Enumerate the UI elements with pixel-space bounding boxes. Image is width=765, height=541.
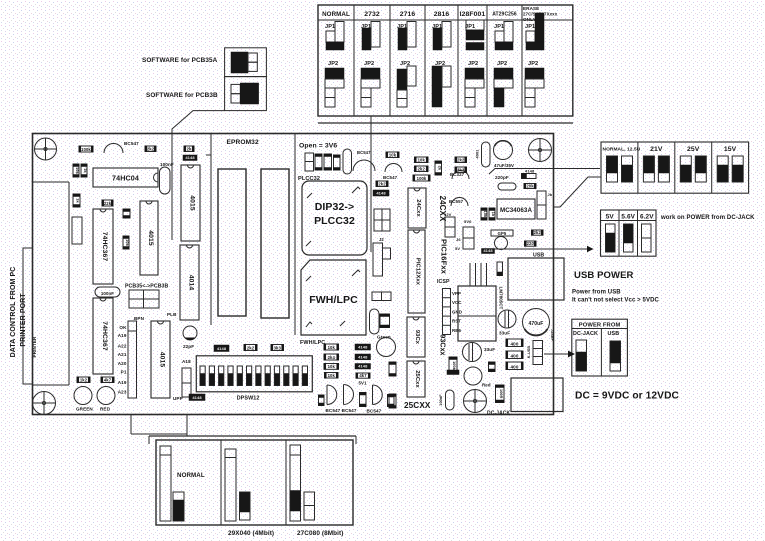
svg-text:NORMAL: NORMAL [322,11,350,18]
svg-text:93Cx: 93Cx [414,330,420,345]
svg-text:ONLY: ONLY [523,17,536,22]
svg-text:10k: 10k [418,157,426,162]
svg-text:BC557: BC557 [449,199,464,204]
svg-text:JP1: JP1 [494,24,504,30]
svg-text:100k: 100k [452,361,456,371]
svg-text:DIP32->: DIP32-> [315,201,355,213]
svg-text:PLCC32: PLCC32 [314,215,355,227]
svg-text:400: 400 [511,341,519,346]
svg-text:NORMAL, 12.5U: NORMAL, 12.5U [603,147,641,153]
svg-text:A22: A22 [118,344,127,349]
svg-text:LM7805CT: LM7805CT [499,287,504,310]
svg-text:24Cxx: 24Cxx [415,199,421,217]
svg-text:2k4: 2k4 [328,355,336,360]
svg-text:100nF: 100nF [101,291,114,296]
svg-text:4148: 4148 [358,354,368,359]
svg-text:DPSW12: DPSW12 [237,396,260,402]
svg-text:PIC16Fxx: PIC16Fxx [440,239,449,275]
svg-text:DATA CONTROL FROM PC: DATA CONTROL FROM PC [10,267,17,358]
svg-text:-USB+: -USB+ [550,329,554,342]
svg-text:4k7: 4k7 [104,377,112,382]
svg-text:BPN: BPN [134,316,145,321]
svg-text:4148: 4148 [185,155,195,160]
svg-text:K-USB: K-USB [527,346,531,359]
svg-text:GND: GND [452,309,462,314]
svg-text:10k: 10k [483,211,487,218]
svg-text:2k2: 2k2 [418,166,426,171]
svg-text:PLB: PLB [167,312,177,317]
svg-text:6.2V: 6.2V [640,214,654,221]
svg-text:RST: RST [452,319,461,324]
svg-text:work on POWER from DC-JACK: work on POWER from DC-JACK [660,215,755,221]
svg-text:BC547: BC547 [383,175,398,180]
svg-text:SOFTWARE for PCB3B: SOFTWARE for PCB3B [146,92,218,99]
svg-text:ICSP: ICSP [437,279,450,285]
svg-text:1k: 1k [491,212,495,217]
svg-text:JP1: JP1 [397,24,407,30]
svg-text:27C080 (8Mbit): 27C080 (8Mbit) [297,530,344,537]
svg-text:BC547: BC547 [124,141,139,146]
svg-text:1k2: 1k2 [80,377,88,382]
svg-text:JP2: JP2 [328,61,338,67]
svg-text:DC-JACK: DC-JACK [573,331,598,337]
svg-text:Open = 3V6: Open = 3V6 [299,143,337,150]
svg-text:JP2: JP2 [497,61,507,67]
svg-text:3k3: 3k3 [457,167,465,172]
svg-text:POWER FROM: POWER FROM [579,323,621,329]
svg-text:USB POWER: USB POWER [574,270,634,281]
svg-text:PRINTER: PRINTER [32,336,37,357]
svg-text:470uF: 470uF [529,321,544,327]
svg-text:Jb: Jb [548,193,553,197]
svg-text:10k: 10k [75,167,79,174]
svg-text:BC547: BC547 [357,150,371,155]
svg-text:4148: 4148 [525,169,535,174]
svg-text:4001: 4001 [476,150,480,159]
svg-text:RB6: RB6 [452,328,462,333]
svg-text:100k: 100k [417,176,427,181]
svg-text:10k: 10k [328,345,336,350]
svg-text:400: 400 [511,353,519,358]
svg-text:2k2: 2k2 [378,181,386,186]
svg-text:100k: 100k [81,147,91,152]
svg-text:74HC04: 74HC04 [112,174,139,183]
svg-text:29X040 (4Mbit): 29X040 (4Mbit) [228,530,274,537]
svg-text:100nF: 100nF [160,162,174,167]
svg-text:A20: A20 [118,361,127,366]
svg-text:Red: Red [482,383,491,388]
svg-text:10k: 10k [389,152,397,157]
svg-text:JP1: JP1 [525,24,535,30]
svg-text:UPP: UPP [173,396,183,401]
svg-text:25CXX: 25CXX [404,401,431,410]
svg-text:PCB35<->PCB3B: PCB35<->PCB3B [125,284,169,290]
svg-text:GP5: GP5 [498,231,507,236]
svg-text:SOFTWARE for PCB35A: SOFTWARE for PCB35A [142,57,218,64]
svg-text:93Cxx: 93Cxx [439,334,446,355]
svg-text:AT29C256: AT29C256 [492,12,517,18]
svg-text:10k: 10k [328,364,336,369]
svg-text:BC547: BC547 [367,409,382,414]
svg-text:4148: 4148 [192,395,202,400]
svg-text:2816: 2816 [434,11,450,18]
svg-text:1k: 1k [83,168,87,173]
svg-text:3k3: 3k3 [274,345,282,350]
svg-text:21V: 21V [650,146,663,153]
svg-text:FWH/LPC: FWH/LPC [309,294,358,306]
svg-text:22pF: 22pF [183,344,194,349]
svg-text:Power from USB: Power from USB [572,290,621,296]
svg-text:1k: 1k [76,198,80,203]
svg-text:2k2: 2k2 [534,230,542,235]
svg-text:VCC: VCC [452,300,462,305]
svg-text:BC547 BC547: BC547 BC547 [326,408,357,413]
svg-text:20k: 20k [526,183,534,188]
svg-text:PIC12Xxx: PIC12Xxx [415,258,421,286]
svg-text:5V1: 5V1 [359,381,368,386]
svg-text:4014: 4014 [188,275,195,291]
svg-text:4015: 4015 [159,352,166,368]
svg-text:2k2: 2k2 [247,345,255,350]
svg-text:4148: 4148 [358,345,368,350]
svg-text:2k2: 2k2 [457,157,465,162]
svg-text:5V6: 5V6 [464,219,472,224]
svg-text:DC-JACK: DC-JACK [487,411,510,417]
svg-text:NORMAL: NORMAL [177,472,205,479]
svg-text:4k7: 4k7 [359,373,367,378]
svg-text:2732: 2732 [364,11,380,18]
svg-text:RED: RED [100,407,111,412]
svg-text:5V: 5V [606,214,615,221]
svg-text:It can't not select Vcc >: It can't not select Vcc > 5VDC [572,298,660,304]
svg-text:24CXX: 24CXX [438,196,447,222]
svg-text:GREEN: GREEN [76,407,93,412]
svg-text:I28F001: I28F001 [460,11,486,18]
svg-text:4148: 4148 [483,248,493,253]
svg-text:47uF/35V: 47uF/35V [494,163,514,168]
svg-text:JP1: JP1 [325,24,335,30]
svg-text:USB: USB [608,331,620,337]
svg-text:JP2: JP2 [468,61,478,67]
svg-text:FWH/LPC: FWH/LPC [300,340,325,346]
svg-text:100R: 100R [499,389,503,399]
svg-text:A19: A19 [118,380,127,385]
svg-text:A18: A18 [182,359,191,364]
svg-text:J6: J6 [456,237,461,242]
svg-text:4148: 4148 [217,346,227,351]
svg-text:OK: OK [119,325,127,330]
svg-text:A19: A19 [118,333,127,338]
svg-text:4148: 4148 [376,191,386,196]
svg-text:A23: A23 [118,390,127,395]
svg-text:220pF: 220pF [495,175,509,180]
svg-text:Green: Green [377,335,391,340]
svg-text:74HC367: 74HC367 [101,321,108,351]
svg-text:4015: 4015 [189,195,196,211]
svg-text:33uF: 33uF [484,347,495,352]
svg-text:A21: A21 [118,352,127,357]
svg-text:12V: 12V [444,212,452,217]
svg-text:VPP: VPP [452,291,461,296]
svg-text:10k: 10k [125,239,129,246]
svg-text:5.6V: 5.6V [621,214,635,221]
svg-text:JP2: JP2 [364,61,374,67]
svg-text:15V: 15V [724,146,737,153]
svg-text:400: 400 [511,364,519,369]
svg-text:4148: 4148 [358,364,368,369]
svg-text:EPROM32: EPROM32 [227,139,259,146]
svg-text:74HC367: 74HC367 [101,232,108,262]
svg-text:2k: 2k [187,146,192,151]
svg-text:4015: 4015 [147,230,154,246]
svg-text:2k2: 2k2 [147,146,155,151]
svg-text:5V: 5V [455,246,460,251]
svg-text:10k: 10k [328,373,336,378]
svg-text:2716: 2716 [400,11,416,18]
svg-text:P1: P1 [121,370,127,375]
svg-text:220: 220 [527,241,535,246]
svg-text:DC = 9VDC or 12VDC: DC = 9VDC or 12VDC [575,391,680,402]
svg-text:PRINTER PORT: PRINTER PORT [20,293,27,347]
svg-text:JP1: JP1 [465,24,475,30]
svg-text:100nF: 100nF [439,394,443,406]
svg-text:25V: 25V [687,146,700,153]
svg-text:25Cxx: 25Cxx [414,370,420,388]
svg-text:ERASE: ERASE [523,6,539,11]
svg-text:J2: J2 [379,237,384,242]
svg-text:JP2: JP2 [528,61,538,67]
svg-text:JP1: JP1 [432,24,442,30]
svg-text:2k: 2k [437,166,441,171]
svg-text:MC34063A: MC34063A [500,207,533,214]
svg-text:33uF: 33uF [499,331,510,336]
svg-text:22k: 22k [104,201,112,206]
svg-text:JP1: JP1 [361,24,371,30]
